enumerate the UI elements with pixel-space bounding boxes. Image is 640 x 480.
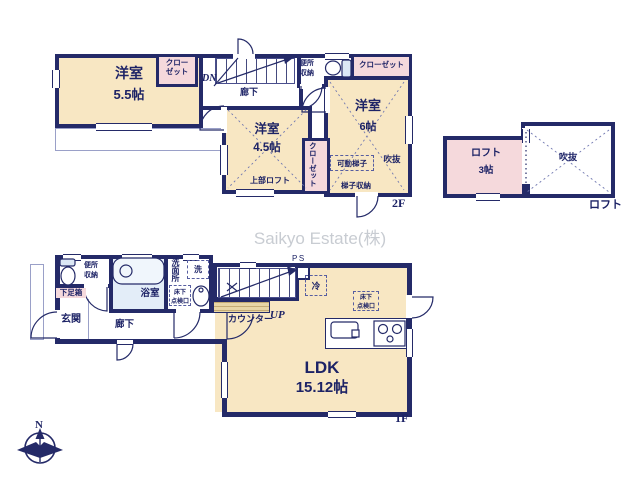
window bbox=[325, 53, 349, 60]
stairs-down-label: DN bbox=[202, 73, 216, 84]
void-label: 吹抜 bbox=[552, 152, 584, 162]
refrigerator-label: 冷 bbox=[312, 280, 321, 292]
window bbox=[406, 329, 413, 357]
door-opening bbox=[325, 87, 330, 113]
movable-ladder-label: 可動梯子 bbox=[337, 158, 367, 169]
floor1-stairs bbox=[218, 268, 296, 298]
floor1-title: 1F bbox=[395, 412, 408, 425]
entrance-porch-outline bbox=[30, 264, 44, 340]
door-opening bbox=[406, 295, 413, 318]
entrance-label: 玄関 bbox=[61, 314, 81, 325]
loft-room-name: ロフト bbox=[461, 148, 511, 159]
ldk-floor-hatch-line2: 点検口 bbox=[357, 301, 375, 310]
toilet-label: 便所 bbox=[300, 60, 314, 68]
movable-ladder-box: 可動梯子 bbox=[330, 155, 374, 171]
bathroom-label: 浴室 bbox=[132, 289, 168, 300]
window bbox=[63, 254, 81, 261]
floor-hatch-box: 床下 点検口 bbox=[169, 285, 191, 306]
door-opening bbox=[300, 84, 322, 89]
door-swing bbox=[357, 196, 378, 217]
floor1-bathroom bbox=[109, 255, 168, 313]
floor2-stairs bbox=[215, 58, 295, 84]
door-opening bbox=[355, 192, 378, 198]
floor-hatch-line1: 床下 bbox=[174, 287, 186, 296]
room-size: 6帖 bbox=[344, 121, 392, 133]
compass-north-label: N bbox=[35, 419, 43, 431]
refrigerator-box: 冷 bbox=[305, 275, 327, 296]
door-swing bbox=[412, 297, 433, 318]
closet-label: クローゼット bbox=[353, 61, 410, 69]
stair-counter bbox=[213, 301, 270, 313]
ldk-floor-hatch-line1: 床下 bbox=[360, 292, 372, 301]
toilet-storage-label: 収納 bbox=[84, 272, 98, 280]
window bbox=[236, 189, 274, 197]
washroom-label: 洗面所 bbox=[170, 258, 179, 282]
washer-box: 洗 bbox=[187, 260, 209, 279]
door-swing bbox=[174, 312, 200, 338]
washer-label: 洗 bbox=[194, 264, 202, 275]
stairs-up-label: UP bbox=[270, 309, 285, 321]
door-opening bbox=[53, 310, 61, 338]
door-swing bbox=[117, 344, 133, 360]
toilet-storage-label: 収納 bbox=[300, 70, 314, 78]
closet-label: クローゼット bbox=[308, 142, 316, 187]
window bbox=[328, 411, 356, 418]
door-opening bbox=[176, 308, 200, 314]
window bbox=[122, 254, 152, 261]
loft-room-size: 3帖 bbox=[466, 166, 506, 177]
room-name: 洋室 bbox=[340, 99, 396, 114]
window bbox=[476, 193, 500, 201]
floor-hatch-line2: 点検口 bbox=[171, 296, 189, 305]
floor2-title: 2F bbox=[392, 197, 405, 210]
compass-circle bbox=[25, 433, 55, 463]
room-name: 洋室 bbox=[237, 122, 297, 136]
window bbox=[405, 116, 413, 144]
void-label: 吹抜 bbox=[378, 155, 406, 165]
compass-bird bbox=[17, 442, 63, 458]
ldk-south-wall bbox=[222, 412, 412, 417]
door-opening bbox=[233, 51, 255, 59]
window bbox=[522, 129, 530, 143]
second-floor-eaves-outline bbox=[55, 128, 228, 151]
window bbox=[220, 145, 228, 175]
ladder-storage-label: 梯子収納 bbox=[332, 182, 380, 190]
toilet-label: 便所 bbox=[84, 262, 98, 270]
pipe-space-label: PS bbox=[292, 255, 306, 264]
room-name: 洋室 bbox=[99, 66, 159, 82]
ldk-name: LDK bbox=[292, 358, 352, 377]
window bbox=[221, 362, 228, 398]
hall-south-wall bbox=[55, 339, 227, 344]
compass-needle-head bbox=[36, 428, 45, 439]
loft-title: ロフト bbox=[589, 199, 622, 211]
floor2-east-room bbox=[324, 76, 412, 197]
entrance-step-line bbox=[88, 299, 89, 340]
door-opening bbox=[84, 283, 108, 289]
window bbox=[52, 70, 60, 88]
closet-label: ゼット bbox=[158, 68, 196, 76]
ldk-north-wall bbox=[295, 263, 412, 268]
room-size: 5.5帖 bbox=[94, 88, 164, 103]
floor-plan: 可動梯子 洗 床下 点検口 冷 床下 点検口 bbox=[0, 0, 640, 480]
ldk-floor-hatch-box: 床下 点検口 bbox=[353, 291, 379, 311]
kitchen-counter bbox=[325, 318, 407, 349]
hallway-label: 廊下 bbox=[240, 87, 258, 97]
window bbox=[96, 123, 152, 131]
window bbox=[117, 339, 133, 345]
door-opening bbox=[221, 107, 227, 133]
upper-loft-label: 上部ロフト bbox=[238, 177, 302, 186]
window bbox=[240, 262, 256, 269]
room-size: 4.5帖 bbox=[232, 142, 302, 155]
watermark: Saikyo Estate(株) bbox=[200, 229, 440, 248]
counter-label: カウンター bbox=[228, 314, 273, 324]
compass-rose: N bbox=[17, 419, 63, 463]
loft-divider-stub bbox=[522, 184, 530, 194]
shoe-cabinet-label: 下足箱 bbox=[56, 288, 86, 298]
ldk-size: 15.12帖 bbox=[282, 380, 362, 397]
hallway-label: 廊下 bbox=[115, 320, 134, 331]
